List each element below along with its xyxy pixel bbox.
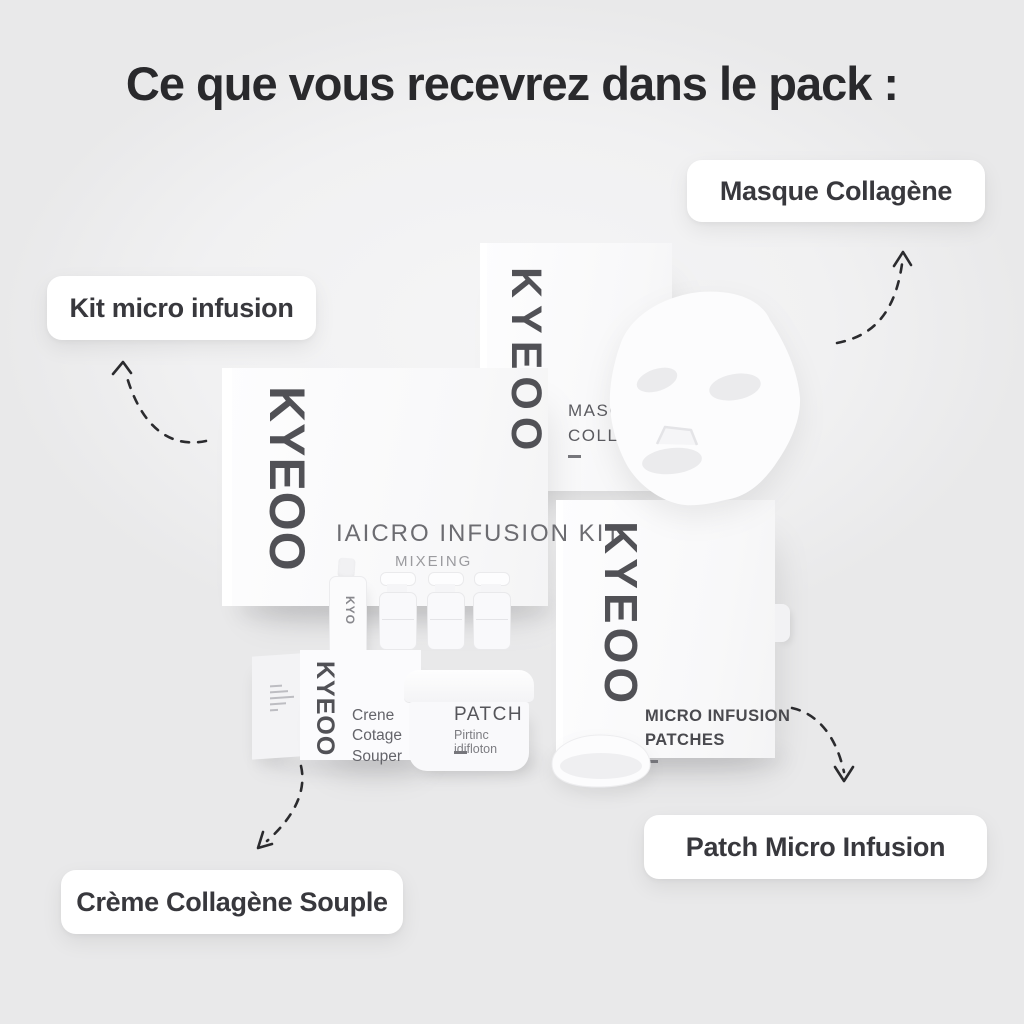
kit-box-title: IAICRO INFUSION KIT xyxy=(336,520,622,548)
vial-body xyxy=(473,592,511,650)
arrowhead-kit xyxy=(113,362,131,374)
arrowhead-masque xyxy=(894,252,911,266)
arrowhead-creme xyxy=(258,832,272,848)
jar-lid xyxy=(404,670,534,702)
dash-mark xyxy=(568,455,581,458)
kit-box-edge xyxy=(222,368,232,606)
patches-box-label-text: MICRO INFUSION PATCHES xyxy=(645,705,790,763)
collagen-sheet-mask xyxy=(595,283,810,513)
patches-box-brand-logo: KYEOO xyxy=(598,521,644,707)
mask-face-shape xyxy=(610,292,800,506)
creme-box-line1: Crene xyxy=(352,706,402,726)
jar-title: PATCH xyxy=(454,704,523,726)
dashed-arrow-patch xyxy=(792,708,844,772)
kit-box-subtitle: MIXEING xyxy=(395,553,472,570)
patches-box-line1: MICRO INFUSION xyxy=(645,705,790,729)
patches-box-tab xyxy=(775,604,790,642)
dashed-arrow-masque xyxy=(837,264,902,343)
callout-masque-collagene: Masque Collagène xyxy=(687,160,985,222)
creme-box-line3: Souper xyxy=(352,747,402,767)
callout-kit-micro-infusion: Kit micro infusion xyxy=(47,276,316,340)
micro-infusion-eye-patch xyxy=(540,728,660,794)
mask-box-brand-logo: KYEOO xyxy=(504,267,547,457)
vial-body xyxy=(427,592,465,650)
vial xyxy=(378,572,416,650)
dropper-brand: KYO xyxy=(344,596,356,625)
creme-box-label-text: Crene Cotage Souper xyxy=(352,706,402,767)
infographic-canvas: Ce que vous recevrez dans le pack : KYEO… xyxy=(0,0,1024,1024)
vial xyxy=(426,572,464,650)
vial-liquid-line xyxy=(382,619,414,620)
patch-jar: PATCH Pirtinc idifloton xyxy=(404,670,534,772)
dashed-arrow-kit xyxy=(126,374,206,442)
patches-box-line2: PATCHES xyxy=(645,729,790,753)
creme-box-line2: Cotage xyxy=(352,726,402,746)
kit-box-brand-logo: KYEOO xyxy=(262,386,312,572)
mask-nose-fold xyxy=(657,427,697,445)
dash-mark xyxy=(454,751,467,754)
page-title: Ce que vous recevrez dans le pack : xyxy=(0,56,1024,111)
vial-liquid-line xyxy=(430,619,462,620)
arrowhead-patch xyxy=(835,767,853,781)
dropper-bottle: KYO xyxy=(327,558,367,658)
creme-box-brand-logo: KYEOO xyxy=(312,661,337,756)
callout-patch-micro-infusion: Patch Micro Infusion xyxy=(644,815,987,879)
vial-body xyxy=(379,592,417,650)
creme-box-side xyxy=(252,653,300,759)
vial-liquid-line xyxy=(476,619,508,620)
vial xyxy=(472,572,510,650)
creme-box-fine-print xyxy=(270,684,296,716)
dashed-arrow-creme xyxy=(267,766,302,841)
callout-creme-collagene-souple: Crème Collagène Souple xyxy=(61,870,403,934)
